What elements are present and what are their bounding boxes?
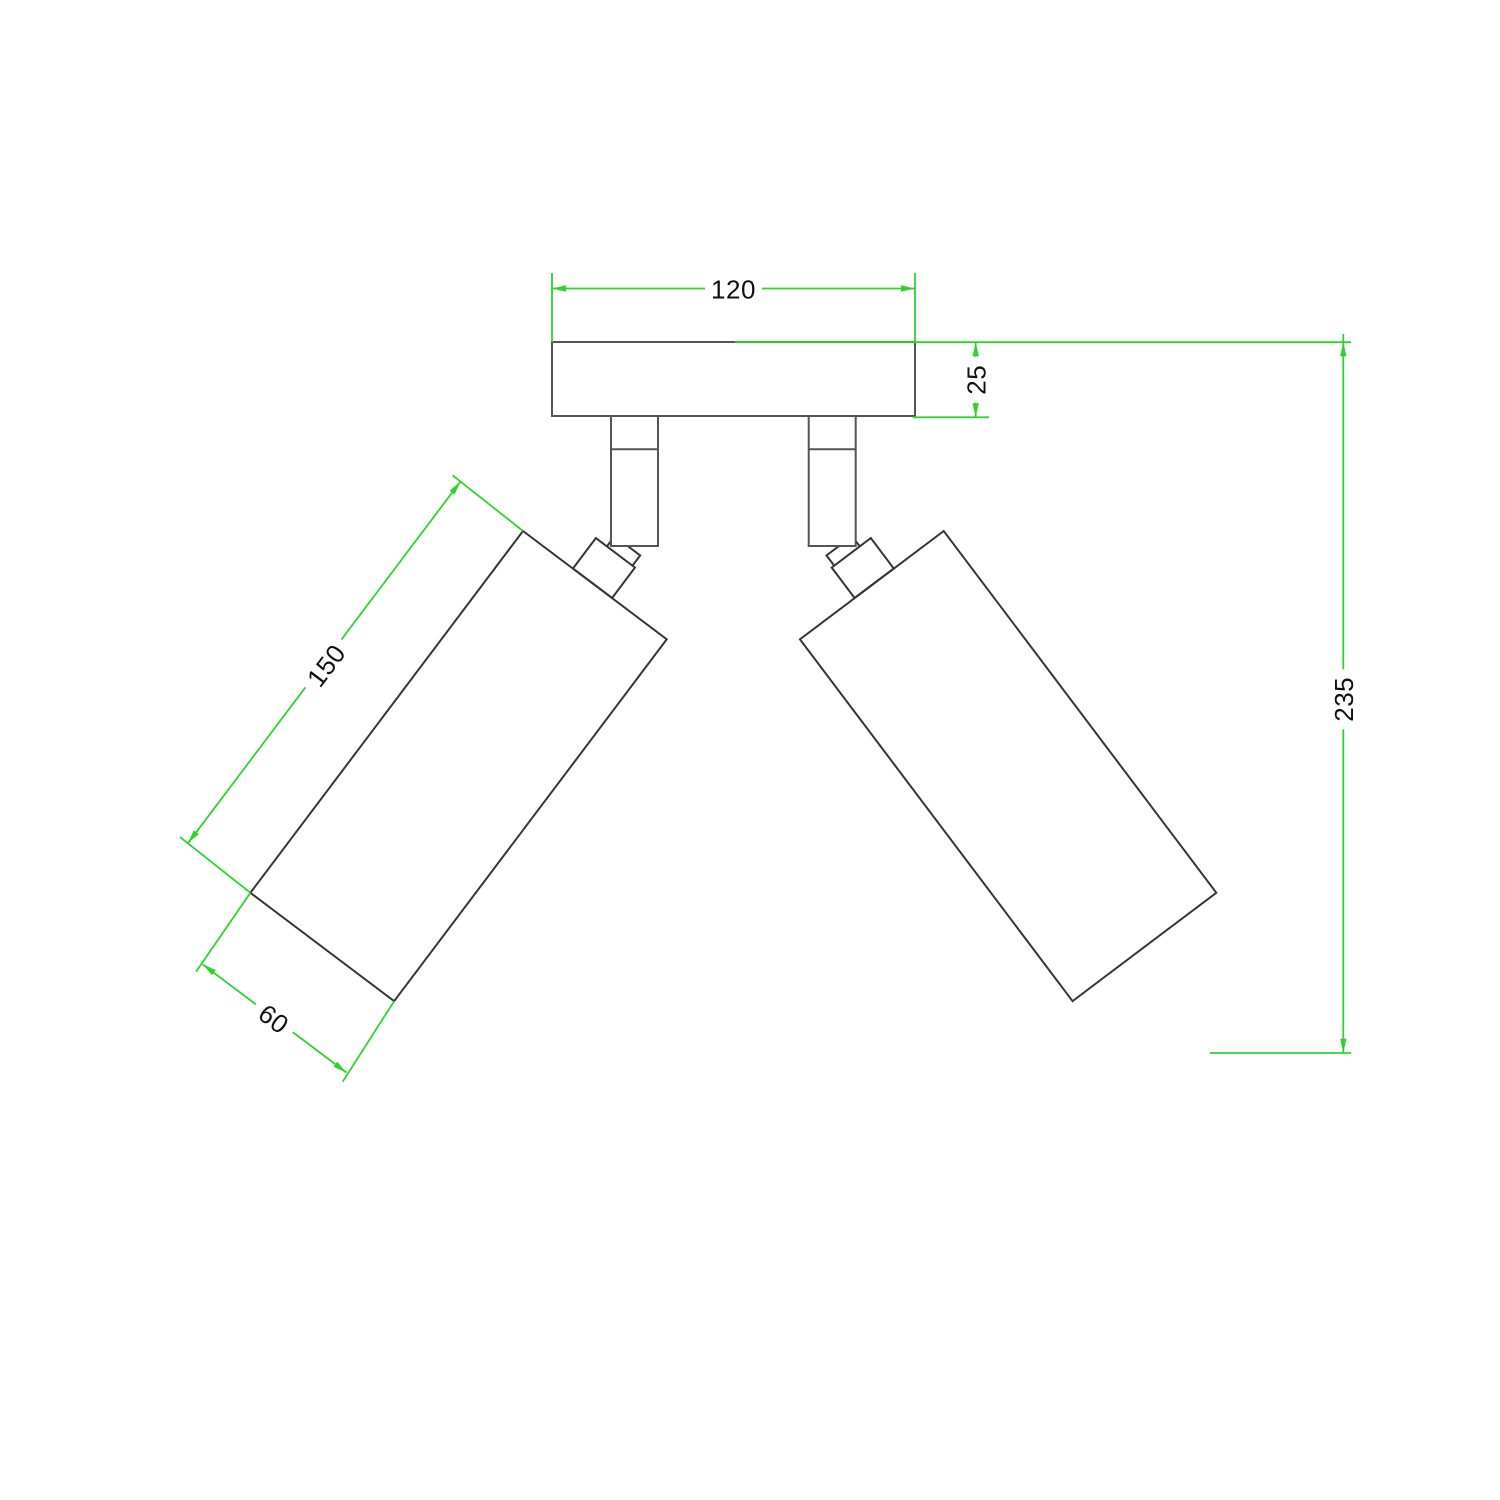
mounting-plate bbox=[552, 342, 915, 416]
ext-line bbox=[180, 837, 250, 893]
dimension-plate-width-120: 120 bbox=[552, 273, 915, 342]
dimension-label-overall-height: 235 bbox=[1329, 677, 1359, 722]
right-spotlight-body bbox=[800, 531, 1216, 1001]
ext-line bbox=[453, 475, 523, 531]
left-stem bbox=[611, 416, 658, 546]
technical-drawing-canvas: 120 25 235 150 60 bbox=[0, 0, 1500, 1500]
dimension-overall-height-235: 235 bbox=[1210, 334, 1359, 1053]
dimension-label-plate-width: 120 bbox=[711, 275, 756, 305]
right-stem bbox=[809, 416, 856, 546]
drawing-page: 120 25 235 150 60 bbox=[0, 0, 1500, 1500]
ext-line bbox=[343, 1001, 395, 1082]
dimension-label-plate-thickness: 25 bbox=[962, 365, 992, 395]
left-spotlight-body bbox=[250, 531, 666, 1001]
ext-line bbox=[196, 893, 250, 972]
